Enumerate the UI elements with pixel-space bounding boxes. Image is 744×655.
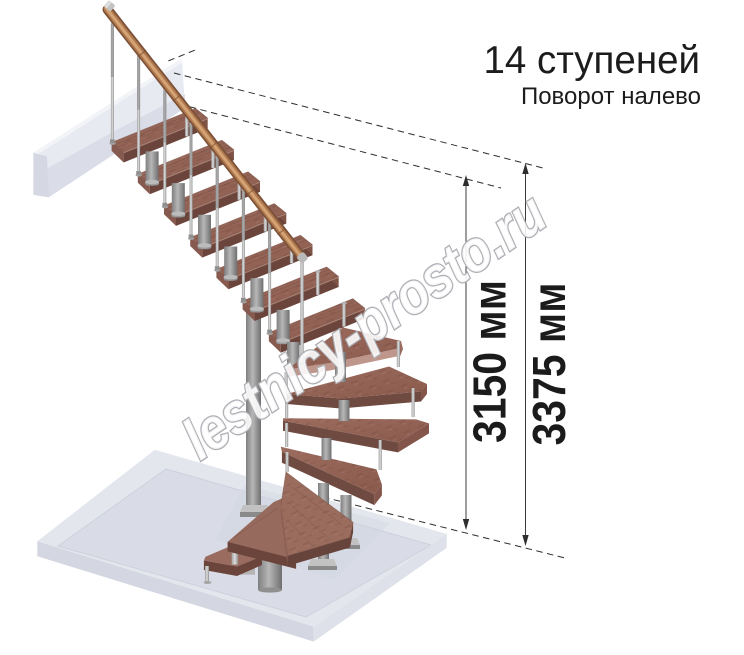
svg-text:3375 мм: 3375 мм xyxy=(525,283,576,446)
svg-text:3150 мм: 3150 мм xyxy=(465,280,516,443)
svg-text:Поворот налево: Поворот налево xyxy=(521,83,701,110)
svg-text:14 ступеней: 14 ступеней xyxy=(483,39,700,82)
